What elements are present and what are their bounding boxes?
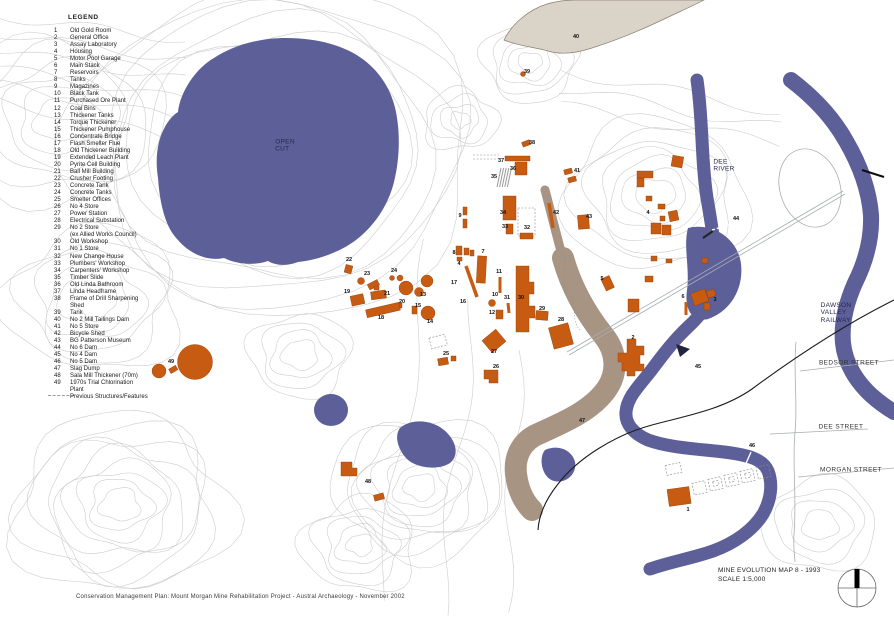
legend-item-number: 29 xyxy=(48,225,70,239)
legend-item-number: 10 xyxy=(48,91,70,98)
legend-item-label: Electrical Substation xyxy=(70,218,180,225)
flash-smelter-flue xyxy=(466,266,477,297)
legend-item: 23 Concrete Tank xyxy=(48,183,180,190)
map-page: OPEN CUT DEE RIVER DAWSON VALLEY RAILWAY… xyxy=(0,0,894,632)
legend-item-label: Motor Pool Garage xyxy=(70,56,180,63)
legend-item-number: 25 xyxy=(48,197,70,204)
legend-item-number: 6 xyxy=(48,63,70,70)
legend-item: 11 Purchased Ore Plant xyxy=(48,98,180,105)
pond-slag xyxy=(542,448,576,482)
legend-item-label: BG Patterson Museum xyxy=(70,338,180,345)
legend-item: 8 Tanks xyxy=(48,77,180,84)
north-arrow xyxy=(838,569,876,607)
legend-item: 4 Housing xyxy=(48,49,180,56)
tailings-dam-shape xyxy=(504,0,704,53)
legend-item-label: Reservoirs xyxy=(70,70,180,77)
sala-mill-thickener xyxy=(178,345,213,380)
legend-item: 26 No 4 Store xyxy=(48,204,180,211)
legend-item-number: 12 xyxy=(48,106,70,113)
dee-river-main xyxy=(626,80,771,569)
legend-item-label: Housing xyxy=(70,49,180,56)
legend-item-number: 8 xyxy=(48,77,70,84)
legend-item-label: Slag Dump xyxy=(70,366,180,373)
legend-item-label: Sala Mill Thickener (70m) xyxy=(70,373,180,380)
legend-item: 40 No 2 Mill Tailings Dam xyxy=(48,317,180,324)
dee-river-bulge xyxy=(686,227,741,320)
legend-item-label: Carpenters' Workshop xyxy=(70,268,180,275)
open-cut-shape xyxy=(157,38,399,265)
legend-item-number: 14 xyxy=(48,120,70,127)
legend-item: 7 Reservoirs xyxy=(48,70,180,77)
legend-item: 41 No 5 Store xyxy=(48,324,180,331)
legend-item-number: 49 xyxy=(48,380,70,394)
legend-items: 1 Old Gold Room 2 General Office 3 xyxy=(48,28,180,394)
legend-item-number: 23 xyxy=(48,183,70,190)
legend-item-label: General Office xyxy=(70,35,180,42)
legend-item: 18 Old Thickener Building xyxy=(48,148,180,155)
legend-item: 37 Linda Headframe xyxy=(48,289,180,296)
legend-item-number: 20 xyxy=(48,162,70,169)
legend-item-label: Frame of Drill Sharpening Shed xyxy=(70,296,180,310)
legend-item-number: 4 xyxy=(48,49,70,56)
legend-item-label: No 5 Dam xyxy=(70,359,180,366)
linda-headframe xyxy=(505,156,530,161)
morgan-street-line xyxy=(798,468,894,477)
legend-item-label: Plumbers' Workshop xyxy=(70,261,180,268)
legend-item-label: Extended Leach Plant xyxy=(70,155,180,162)
legend-item-number: 30 xyxy=(48,239,70,246)
legend-item-number: 9 xyxy=(48,84,70,91)
legend-item: 49 1970s Trial Chlorination Plant xyxy=(48,380,180,394)
legend-item-label: Crusher Footing xyxy=(70,176,180,183)
legend-item: 32 New Change House xyxy=(48,254,180,261)
electrical-substation xyxy=(548,323,573,349)
legend-item-label: Old Linda Bathroom xyxy=(70,282,180,289)
legend-item-number: 5 xyxy=(48,56,70,63)
legend-item: 31 No 1 Store xyxy=(48,246,180,253)
legend-item-label: Timber Slide xyxy=(70,275,180,282)
legend-item-number: 35 xyxy=(48,275,70,282)
old-gold-room xyxy=(667,487,691,507)
legend-item-label: Previous Structures/Features xyxy=(70,394,180,401)
legend-item-number: 1 xyxy=(48,28,70,35)
legend-item-previous: Previous Structures/Features xyxy=(48,394,180,401)
legend-item-label: Magazines xyxy=(70,84,180,91)
legend-item-label: No 5 Store xyxy=(70,324,180,331)
legend-item: 2 General Office xyxy=(48,35,180,42)
legend-item: 17 Flash Smelter Flue xyxy=(48,141,180,148)
legend-item-number: 37 xyxy=(48,289,70,296)
legend-item-label: No 6 Dam xyxy=(70,345,180,352)
map-title: MINE EVOLUTION MAP 8 - 1993 xyxy=(718,566,820,575)
legend-item: 30 Old Workshop xyxy=(48,239,180,246)
legend-item-label: Purchased Ore Plant xyxy=(70,98,180,105)
legend-item-number: 38 xyxy=(48,296,70,310)
legend-item-number: 26 xyxy=(48,204,70,211)
dashed-line-icon xyxy=(48,394,70,401)
legend-item-label: Concrete Tank xyxy=(70,183,180,190)
legend-item: 13 Thickener Tanks xyxy=(48,113,180,120)
legend-item-number: 17 xyxy=(48,141,70,148)
legend-item-label: Old Thickener Building xyxy=(70,148,180,155)
legend-item-number: 11 xyxy=(48,98,70,105)
road-loop xyxy=(769,141,851,236)
footer-caption: Conservation Management Plan: Mount Morg… xyxy=(76,594,405,600)
legend-item-number: 45 xyxy=(48,352,70,359)
legend-item: 46 No 5 Dam xyxy=(48,359,180,366)
legend-item: 5 Motor Pool Garage xyxy=(48,56,180,63)
legend-item-label: 1970s Trial Chlorination Plant xyxy=(70,380,180,394)
legend-item: 15 Thickener Pumphouse xyxy=(48,127,180,134)
legend-item-label: Black Tank xyxy=(70,91,180,98)
legend-item-number: 7 xyxy=(48,70,70,77)
general-office xyxy=(618,339,644,376)
legend-item: 24 Concrete Tanks xyxy=(48,190,180,197)
legend-item-label: Old Workshop xyxy=(70,239,180,246)
legend-item-number: 36 xyxy=(48,282,70,289)
legend-item-label: Thickener Pumphouse xyxy=(70,127,180,134)
legend-item-number: 31 xyxy=(48,246,70,253)
legend-item-number: 40 xyxy=(48,317,70,324)
legend-item-label: No 2 Mill Tailings Dam xyxy=(70,317,180,324)
legend-item: 29 No 2 Store (ex Allied Works Council) xyxy=(48,225,180,239)
legend-item-number: 39 xyxy=(48,310,70,317)
legend-item-label: Assay Laboratory xyxy=(70,42,180,49)
legend-item-label: Concentrate Bridge xyxy=(70,134,180,141)
legend-item-label: No 2 Store (ex Allied Works Council) xyxy=(70,225,180,239)
legend-item-number: 41 xyxy=(48,324,70,331)
legend-item-label: New Change House xyxy=(70,254,180,261)
legend-item: 25 Smelter Offices xyxy=(48,197,180,204)
legend-item-number: 27 xyxy=(48,211,70,218)
legend-item-number: 22 xyxy=(48,176,70,183)
legend-item: 33 Plumbers' Workshop xyxy=(48,261,180,268)
legend-item-number: 28 xyxy=(48,218,70,225)
legend-item-number: 13 xyxy=(48,113,70,120)
legend-item-number: 46 xyxy=(48,359,70,366)
legend-item: 14 Torque Thickener xyxy=(48,120,180,127)
legend-item-label: Coal Bins xyxy=(70,106,180,113)
thickener-tank xyxy=(399,281,413,295)
legend-item: 43 BG Patterson Museum xyxy=(48,338,180,345)
legend-item-number: 21 xyxy=(48,169,70,176)
legend-item: 3 Assay Laboratory xyxy=(48,42,180,49)
tank-39 xyxy=(521,72,526,77)
legend-item-label: Power Station xyxy=(70,211,180,218)
legend-item: 48 Sala Mill Thickener (70m) xyxy=(48,373,180,380)
legend-item-number: 48 xyxy=(48,373,70,380)
legend-item-label: Linda Headframe xyxy=(70,289,180,296)
pond-central xyxy=(397,421,456,467)
thickener-tank xyxy=(415,288,424,297)
legend-item: 22 Crusher Footing xyxy=(48,176,180,183)
legend-item: 42 Bicycle Shed xyxy=(48,331,180,338)
legend-item-label: Tank xyxy=(70,310,180,317)
thickener-tank xyxy=(421,275,433,287)
legend-item-number: 47 xyxy=(48,366,70,373)
legend-item: 20 Pyrite Cell Building xyxy=(48,162,180,169)
legend-item: 6 Main Stack xyxy=(48,63,180,70)
legend-item: 44 No 6 Dam xyxy=(48,345,180,352)
legend-item-number: 16 xyxy=(48,134,70,141)
legend-item-number: 18 xyxy=(48,148,70,155)
legend-item-number: 2 xyxy=(48,35,70,42)
legend-item-label: Bicycle Shed xyxy=(70,331,180,338)
legend-item: 9 Magazines xyxy=(48,84,180,91)
legend-item-label: Smelter Offices xyxy=(70,197,180,204)
legend-item: 35 Timber Slide xyxy=(48,275,180,282)
timber-slide-hatch xyxy=(497,168,511,187)
legend-item-label: Pyrite Cell Building xyxy=(70,162,180,169)
legend-item-number: 43 xyxy=(48,338,70,345)
legend-item-label: Torque Thickener xyxy=(70,120,180,127)
title-block: MINE EVOLUTION MAP 8 - 1993 SCALE 1:5,00… xyxy=(718,566,820,584)
legend-item: 12 Coal Bins xyxy=(48,106,180,113)
legend-item-number: 24 xyxy=(48,190,70,197)
legend-item-label: Flash Smelter Flue xyxy=(70,141,180,148)
legend-item-label: Tanks xyxy=(70,77,180,84)
legend-item: 19 Extended Leach Plant xyxy=(48,155,180,162)
legend-item-label: Ball Mill Building xyxy=(70,169,180,176)
legend-item-number: 32 xyxy=(48,254,70,261)
legend-item: 16 Concentrate Bridge xyxy=(48,134,180,141)
legend-item-label: Concrete Tanks xyxy=(70,190,180,197)
legend-item-label: Thickener Tanks xyxy=(70,113,180,120)
legend-item-number: 42 xyxy=(48,331,70,338)
legend-item-label: Main Stack xyxy=(70,63,180,70)
legend-item-number: 19 xyxy=(48,155,70,162)
museum xyxy=(577,215,589,230)
map-scale: SCALE 1:5,000 xyxy=(718,575,820,584)
legend-item-label: No 1 Store xyxy=(70,246,180,253)
legend: LEGEND 1 Old Gold Room 2 General Office xyxy=(48,14,180,401)
power-station xyxy=(482,329,506,353)
legend-item-number: 33 xyxy=(48,261,70,268)
legend-item-number: 44 xyxy=(48,345,70,352)
legend-item: 1 Old Gold Room xyxy=(48,28,180,35)
dee-street-line xyxy=(770,429,868,434)
torque-thickener xyxy=(421,306,435,320)
legend-item-label: Old Gold Room xyxy=(70,28,180,35)
legend-item-number: 15 xyxy=(48,127,70,134)
legend-item: 36 Old Linda Bathroom xyxy=(48,282,180,289)
legend-item: 10 Black Tank xyxy=(48,91,180,98)
legend-item: 27 Power Station xyxy=(48,211,180,218)
legend-item: 34 Carpenters' Workshop xyxy=(48,268,180,275)
legend-item-label: No 4 Dam xyxy=(70,352,180,359)
road-vertical xyxy=(794,342,796,562)
legend-item: 38 Frame of Drill Sharpening Shed xyxy=(48,296,180,310)
legend-item: 28 Electrical Substation xyxy=(48,218,180,225)
legend-item: 45 No 4 Dam xyxy=(48,352,180,359)
pond-small xyxy=(314,394,348,426)
legend-item-number: 3 xyxy=(48,42,70,49)
legend-item: 39 Tank xyxy=(48,310,180,317)
legend-item-number: 34 xyxy=(48,268,70,275)
legend-title: LEGEND xyxy=(68,14,180,21)
legend-item-label: No 4 Store xyxy=(70,204,180,211)
old-workshop xyxy=(516,266,535,332)
legend-item: 47 Slag Dump xyxy=(48,366,180,373)
legend-item: 21 Ball Mill Building xyxy=(48,169,180,176)
